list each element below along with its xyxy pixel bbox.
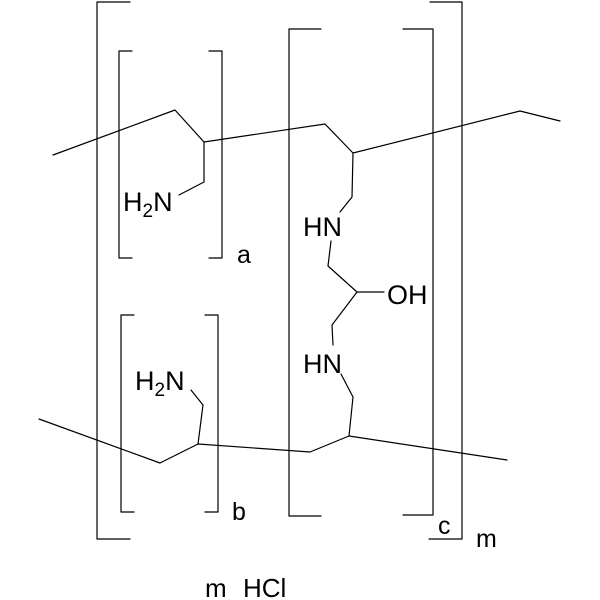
- secondary-amine-label-upper: HN: [303, 212, 342, 242]
- primary-amine-label-unit-b: H2N: [135, 366, 185, 401]
- unit-b-aminomethyl-bond: [191, 390, 203, 444]
- repeat-unit-b-label: b: [232, 498, 246, 526]
- unit-c-lower-aminomethyl-bond: [341, 374, 353, 436]
- outer-repeat-bracket: [97, 2, 462, 539]
- repeat-unit-c-label: c: [438, 512, 451, 540]
- crosslink-lower-bond: [332, 292, 357, 345]
- unit-b-bracket: [121, 315, 218, 512]
- unit-c-bracket-right: [403, 29, 433, 515]
- bonds: [39, 110, 560, 463]
- unit-b-bracket-right: [205, 315, 218, 512]
- top-backbone-bond: [53, 110, 560, 155]
- unit-b-bracket-left: [121, 315, 134, 512]
- hydroxyl-label: OH: [387, 280, 428, 310]
- unit-a-bracket-left: [119, 51, 132, 258]
- salt-notation: m HCl: [205, 573, 286, 600]
- repeat-unit-a-label: a: [237, 241, 251, 269]
- primary-amine-label-unit-a: H2N: [123, 187, 173, 222]
- unit-c-bracket-left: [289, 29, 321, 516]
- outer-bracket-left: [97, 2, 130, 539]
- h2n-h: H: [135, 366, 155, 396]
- unit-a-bracket-right: [209, 51, 222, 258]
- h2n-h: H: [123, 187, 143, 217]
- h2n-n: N: [153, 187, 173, 217]
- h2n-subscript: 2: [143, 201, 154, 222]
- h2n-n: N: [165, 366, 185, 396]
- h2n-subscript: 2: [155, 380, 166, 401]
- unit-a-aminomethyl-bond: [179, 142, 204, 195]
- chemical-structure-canvas: H2N HN OH HN H2N a b c m m HCl: [0, 0, 600, 600]
- bottom-backbone-bond: [39, 419, 507, 463]
- outer-bracket-right: [429, 2, 462, 539]
- unit-a-bracket: [119, 51, 222, 258]
- polymer-structure-drawing: H2N HN OH HN H2N a b c m m HCl: [0, 0, 600, 600]
- unit-c-bracket: [289, 29, 433, 516]
- repeat-unit-m-label: m: [476, 525, 497, 553]
- secondary-amine-label-lower: HN: [303, 349, 342, 379]
- salt-formula-label: HCl: [243, 573, 286, 600]
- salt-multiplier-label: m: [205, 573, 227, 600]
- unit-c-upper-aminomethyl-bond: [340, 153, 353, 212]
- crosslink-upper-bond: [328, 241, 384, 292]
